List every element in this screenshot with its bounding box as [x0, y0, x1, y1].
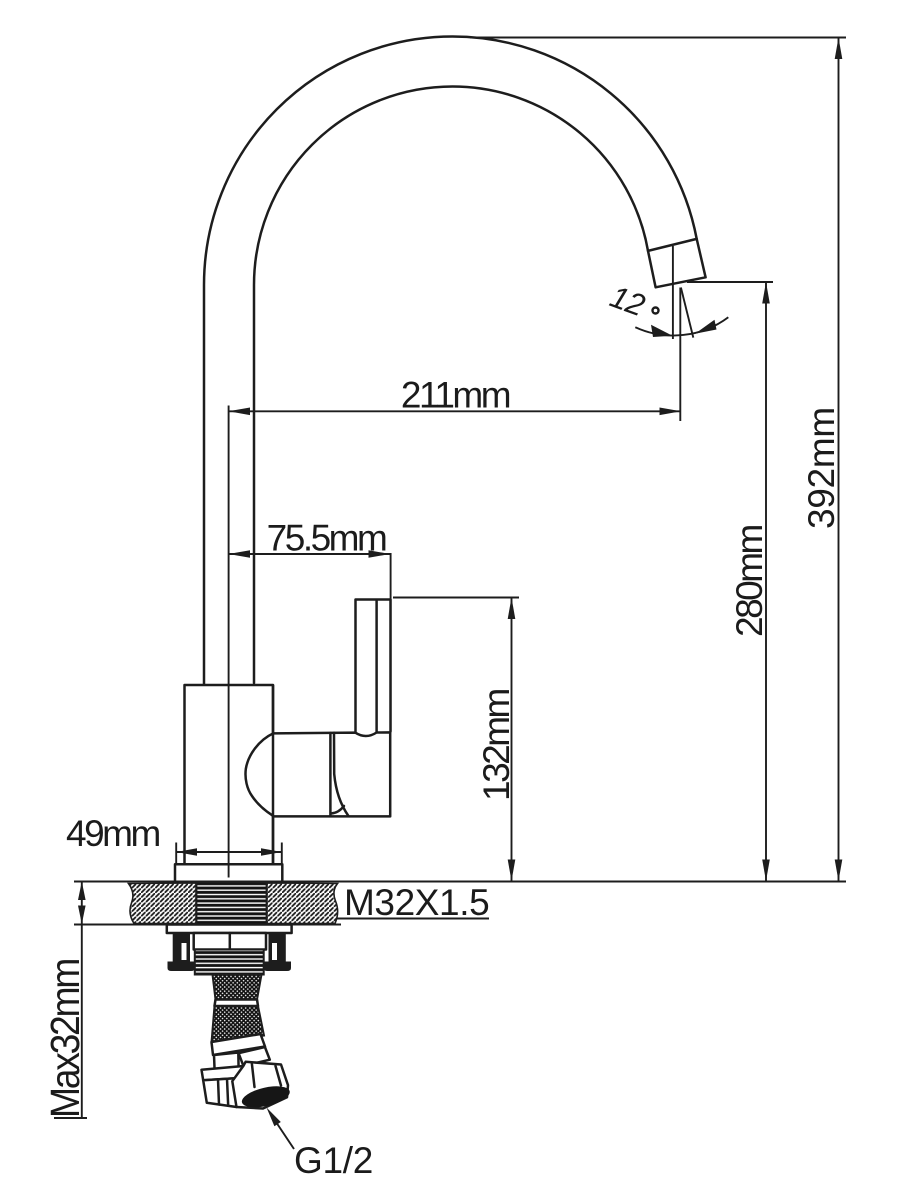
- svg-text:G1/2: G1/2: [294, 1140, 373, 1181]
- svg-text:392mm: 392mm: [801, 407, 842, 529]
- svg-text:280mm: 280mm: [729, 525, 770, 637]
- svg-text:49mm: 49mm: [66, 813, 159, 854]
- svg-text:75.5mm: 75.5mm: [267, 518, 386, 559]
- svg-text:132mm: 132mm: [476, 689, 517, 801]
- svg-text:M32X1.5: M32X1.5: [344, 882, 489, 923]
- svg-text:211mm: 211mm: [401, 375, 510, 416]
- svg-text:Max32mm: Max32mm: [42, 960, 88, 1118]
